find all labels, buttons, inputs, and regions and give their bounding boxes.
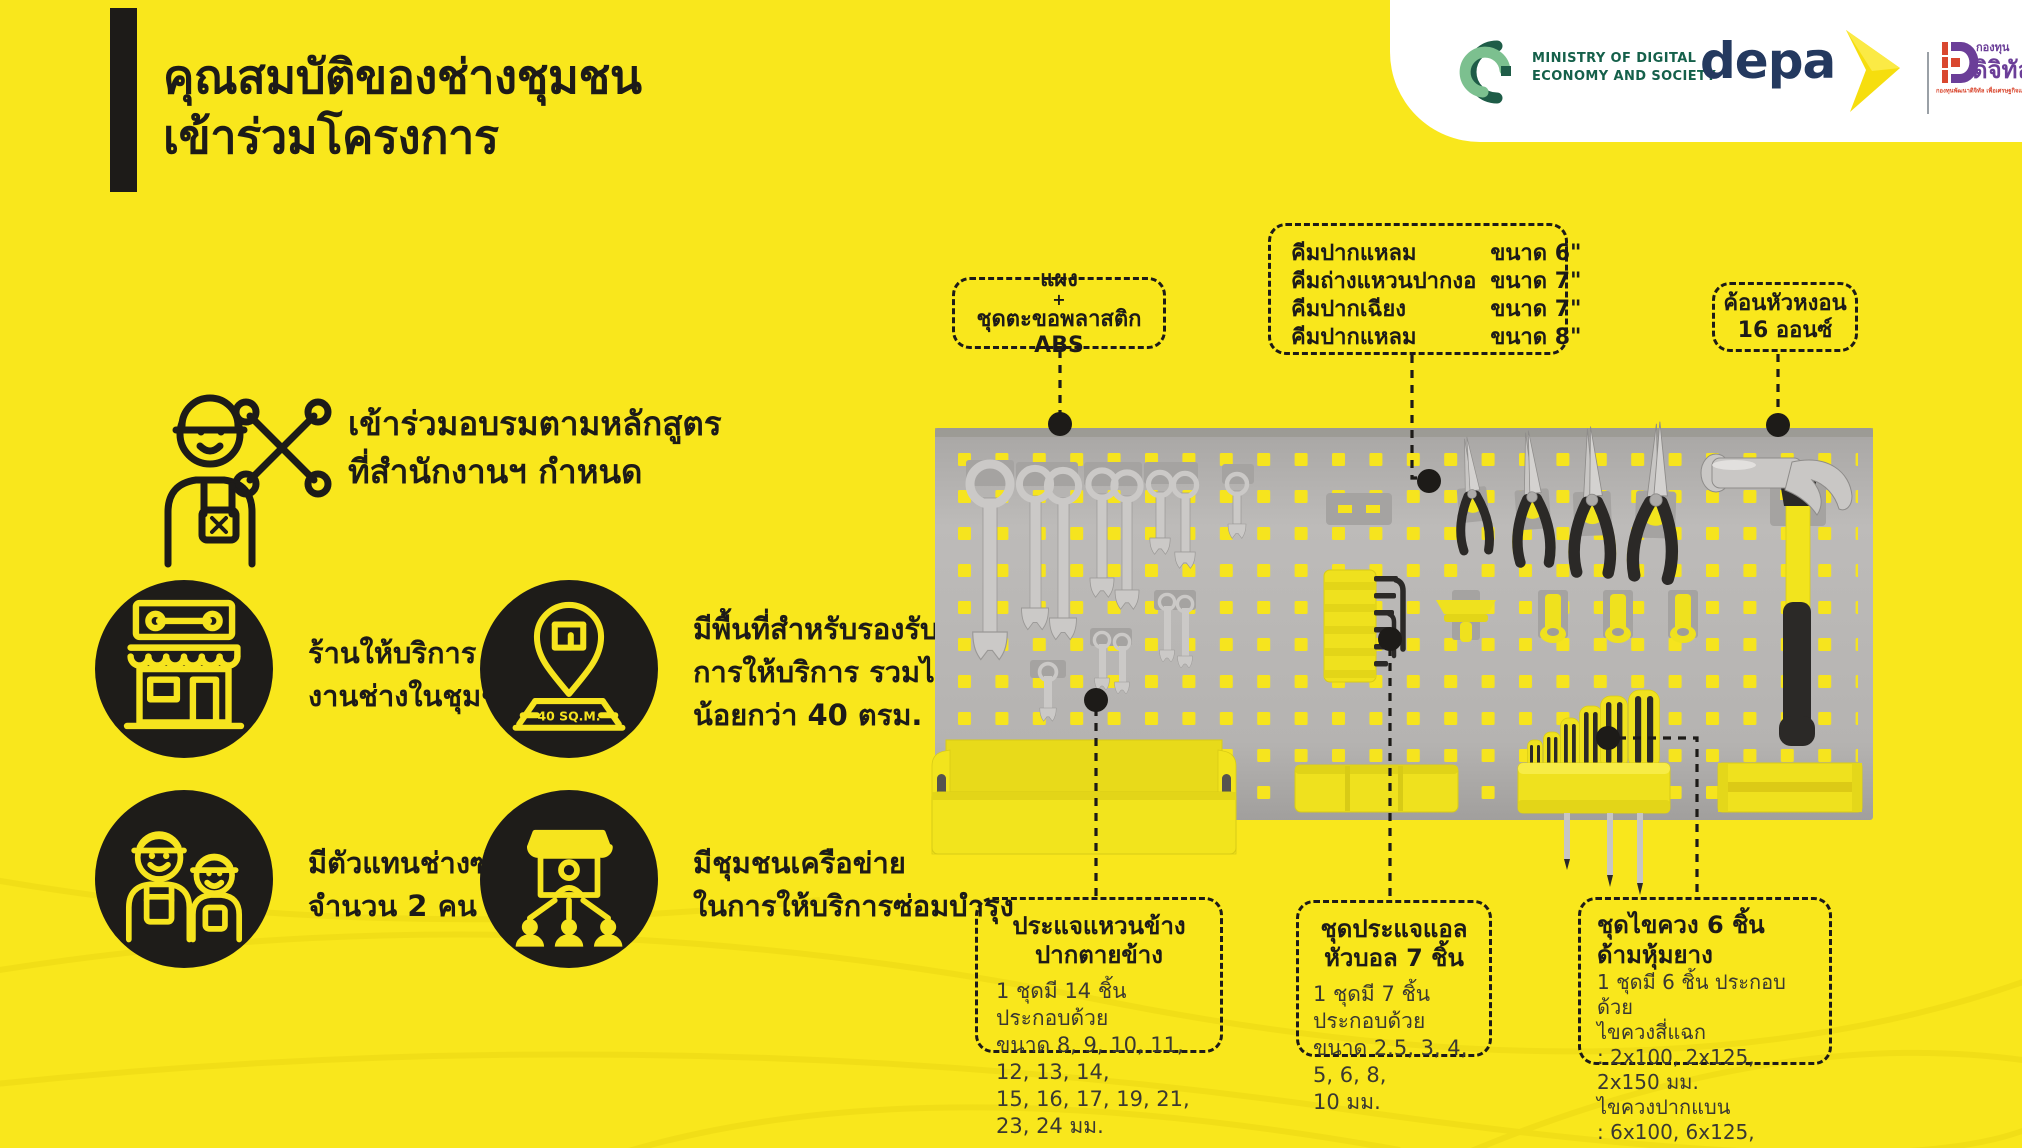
depa-logo-wordmark: depa	[1700, 32, 1835, 90]
page-title-line1: คุณสมบัติของช่างชุมชน	[163, 48, 642, 108]
hex-set-title2: หัวบอล 7 ชิ้น	[1313, 944, 1475, 973]
mdes-line1: MINISTRY OF DIGITAL	[1532, 50, 1716, 68]
wrench-set-body3: 15, 16, 17, 19, 21, 23, 24 มม.	[996, 1086, 1202, 1140]
infographic-canvas: คุณสมบัติของช่างชุมชน เข้าร่วมโครงการ MI…	[0, 0, 2022, 1148]
callout-hex-set: ชุดประแจแอล หัวบอล 7 ชิ้น 1 ชุดมี 7 ชิ้น…	[1296, 900, 1492, 1057]
wrench-set-title2: ปากตายข้าง	[996, 941, 1202, 970]
pliers-row4-size: ขนาด 8"	[1490, 325, 1581, 351]
callout-wrench-set: ประแจแหวนข้าง ปากตายข้าง 1 ชุดมี 14 ชิ้น…	[975, 897, 1223, 1053]
fund-thai-main: ดิจิทัล	[1972, 50, 2022, 89]
callout-panel: แผง + ชุดตะขอพลาสติก ABS	[952, 277, 1166, 349]
logo-panel: MINISTRY OF DIGITAL ECONOMY AND SOCIETY …	[1390, 0, 2022, 142]
technician-icon	[138, 346, 338, 568]
page-title-line2: เข้าร่วมโครงการ	[163, 108, 642, 168]
technicians-icon-circle	[95, 790, 273, 968]
service-area-icon: 40 SQ.M.	[480, 580, 658, 758]
hex-set-title1: ชุดประแจแอล	[1313, 915, 1475, 944]
pliers-row1-name: คีมปากแหลม	[1291, 241, 1476, 267]
area-icon-label: 40 SQ.M.	[537, 709, 600, 724]
qualification-2-text: มีพื้นที่สำหรับรองรับ การให้บริการ รวมไม…	[693, 608, 954, 737]
callout-screwdriver-set: ชุดไขควง 6 ชิ้น ด้ามหุ้มยาง 1 ชุดมี 6 ชิ…	[1578, 897, 1832, 1065]
mdes-line2: ECONOMY AND SOCIETY	[1532, 68, 1716, 86]
callout-panel-line3: ชุดตะขอพลาสติก ABS	[955, 307, 1163, 359]
mdes-logo-text: MINISTRY OF DIGITAL ECONOMY AND SOCIETY	[1532, 50, 1716, 86]
depa-arrow-icon	[1842, 28, 1904, 114]
pliers-row3-name: คีมปากเฉียง	[1291, 297, 1476, 323]
two-technicians-icon	[95, 790, 273, 968]
pliers-row1-size: ขนาด 6"	[1490, 241, 1581, 267]
hook-plate	[1326, 493, 1392, 525]
callout-hammer-line1: ค้อนหัวหงอน	[1723, 290, 1846, 317]
parts-bin	[1295, 765, 1458, 812]
pegboard-tools-image	[930, 420, 1875, 900]
qual2-line1: มีพื้นที่สำหรับรองรับ	[693, 608, 954, 651]
network-icon-circle	[480, 790, 658, 968]
screwdriver-set-body5: : 6x100, 6x125, 6x150 มม.	[1597, 1120, 1813, 1148]
tool-rail	[1718, 763, 1862, 812]
pliers-row2-name: คีมถ่างแหวนปากงอ	[1291, 269, 1476, 295]
callout-hammer-line2: 16 ออนซ์	[1738, 317, 1833, 344]
callout-panel-line1: แผง	[1040, 268, 1078, 292]
page-title: คุณสมบัติของช่างชุมชน เข้าร่วมโครงการ	[163, 48, 642, 168]
logo-divider	[1927, 52, 1929, 114]
hex-set-body2: ขนาด 2.5, 3, 4, 5, 6, 8,	[1313, 1035, 1475, 1089]
callout-hammer: ค้อนหัวหงอน 16 ออนซ์	[1712, 282, 1858, 352]
pliers-row3-size: ขนาด 7"	[1490, 297, 1581, 323]
wrench-set-body1: 1 ชุดมี 14 ชิ้น ประกอบด้วย	[996, 978, 1202, 1032]
screwdriver-set-body4: ไขควงปากแบน	[1597, 1095, 1813, 1120]
wrench-set-body2: ขนาด 8, 9, 10, 11, 12, 13, 14,	[996, 1032, 1202, 1086]
screwdriver-set-body2: ไขควงสี่แฉก	[1597, 1020, 1813, 1045]
community-network-icon	[480, 790, 658, 968]
screwdriver-set-body1: 1 ชุดมี 6 ชิ้น ประกอบด้วย	[1597, 970, 1813, 1020]
wrench-set-title1: ประแจแหวนข้าง	[996, 912, 1202, 941]
training-line2: ที่สำนักงานฯ กำหนด	[348, 448, 722, 496]
qual2-line2: การให้บริการ รวมไม่	[693, 651, 954, 694]
hex-set-body3: 10 มม.	[1313, 1089, 1475, 1116]
pliers-row2-size: ขนาด 7"	[1490, 269, 1581, 295]
training-line1: เข้าร่วมอบรมตามหลักสูตร	[348, 400, 722, 448]
fund-tagline: กองทุนพัฒนาดิจิทัล เพื่อเศรษฐกิจและสังคม	[1936, 86, 2021, 95]
storage-tray	[932, 740, 1236, 854]
pliers-row4-name: คีมปากแหลม	[1291, 325, 1476, 351]
screwdriver-set-body3: : 2x100, 2x125, 2x150 มม.	[1597, 1045, 1813, 1095]
training-requirement-text: เข้าร่วมอบรมตามหลักสูตร ที่สำนักงานฯ กำห…	[348, 400, 722, 496]
repair-shop-icon-circle	[95, 580, 273, 758]
hex-set-body1: 1 ชุดมี 7 ชิ้น ประกอบด้วย	[1313, 981, 1475, 1035]
callout-panel-line2: +	[1052, 292, 1065, 307]
service-area-icon-circle: 40 SQ.M.	[480, 580, 658, 758]
title-accent-bar	[110, 8, 137, 192]
callout-pliers: คีมปากแหลมขนาด 6" คีมถ่างแหวนปากงอขนาด 7…	[1268, 223, 1568, 355]
qual2-line3: น้อยกว่า 40 ตรม.	[693, 694, 954, 737]
mdes-logo-icon	[1445, 30, 1525, 114]
repair-shop-icon	[95, 580, 273, 758]
screwdriver-set-title: ชุดไขควง 6 ชิ้น ด้ามหุ้มยาง	[1597, 910, 1813, 970]
